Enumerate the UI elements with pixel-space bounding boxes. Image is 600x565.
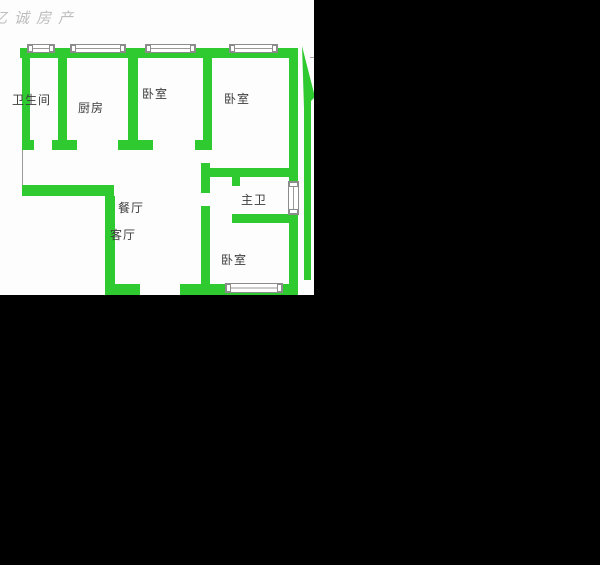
room-label-bathroom: 卫生间 [12, 94, 51, 107]
screenshot-canvas: { "watermark": "亿诚房产", "colors": { "wall… [0, 0, 600, 565]
room-label-bedroom-top-right: 卧室 [224, 93, 250, 106]
partial-compass-label [310, 57, 314, 69]
room-label-living-room: 客厅 [110, 229, 136, 242]
north-arrow-icon [0, 0, 314, 295]
room-label-bedroom-top-left: 卧室 [142, 88, 168, 101]
room-label-kitchen: 厨房 [78, 102, 104, 115]
room-label-master-bathroom: 主卫 [241, 194, 267, 207]
room-label-bedroom-bottom: 卧室 [221, 254, 247, 267]
floorplan-image: 亿诚房产 卫生间 厨房 卧室 卧室 主卫 卧室 餐厅 客厅 [0, 0, 314, 295]
room-label-dining-room: 餐厅 [118, 202, 144, 215]
